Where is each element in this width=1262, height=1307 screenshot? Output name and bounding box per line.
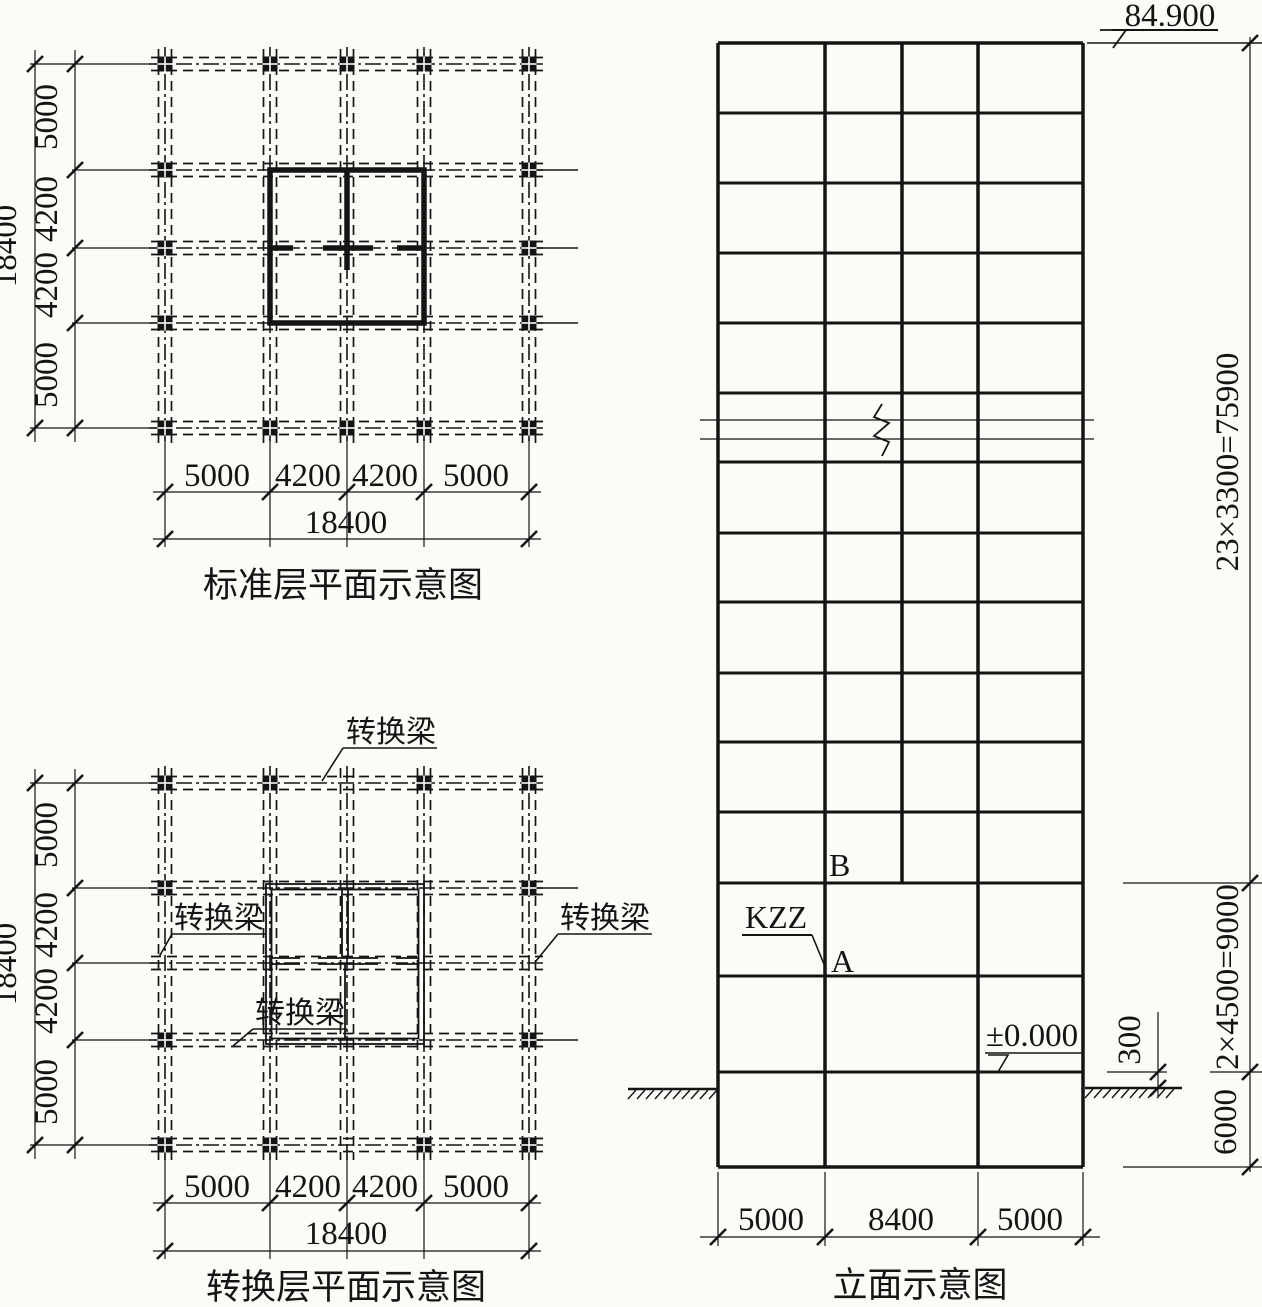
level-triangle-icon bbox=[1100, 30, 1126, 48]
point-a-label: A bbox=[831, 943, 854, 979]
dim-left: 4200 bbox=[29, 176, 65, 242]
leader-line bbox=[536, 934, 558, 961]
dim-basement: 6000 bbox=[1208, 1089, 1244, 1155]
plan-title: 转换层平面示意图 bbox=[206, 1268, 486, 1307]
text-layer: 18400 5000 4200 4200 5000 5000 4200 4200… bbox=[0, 0, 1246, 1307]
dim-left: 5000 bbox=[29, 84, 65, 150]
dim-total-left: 18400 bbox=[0, 923, 24, 1006]
ground-hatch bbox=[637, 1090, 645, 1099]
ground-hatch bbox=[646, 1090, 654, 1099]
elevation-view bbox=[628, 35, 1262, 1246]
roof-level-value: 84.900 bbox=[1125, 0, 1216, 34]
dim-tower-height: 23×3300=75900 bbox=[1210, 353, 1246, 572]
structural-drawing-sheet: 18400 5000 4200 4200 5000 5000 4200 4200… bbox=[0, 0, 1262, 1307]
ground-hatch bbox=[1166, 1089, 1174, 1098]
dim-total-bottom: 18400 bbox=[305, 1216, 388, 1252]
ground-hatch bbox=[1139, 1089, 1147, 1098]
break-zigzag-icon bbox=[874, 404, 889, 456]
dim-bottom: 4200 bbox=[352, 1169, 418, 1205]
dim-total-bottom: 18400 bbox=[305, 505, 388, 541]
dim-total-left: 18400 bbox=[0, 205, 24, 288]
ground-hatch bbox=[709, 1090, 717, 1099]
dim-left: 4200 bbox=[29, 892, 65, 958]
annotation-lines bbox=[159, 30, 1218, 1072]
dim-bottom: 4200 bbox=[352, 458, 418, 494]
dim-bottom: 5000 bbox=[443, 458, 509, 494]
ground-hatch bbox=[700, 1090, 708, 1099]
dim-bottom: 4200 bbox=[275, 458, 341, 494]
dim-bottom: 5000 bbox=[443, 1169, 509, 1205]
dim-bottom: 5000 bbox=[738, 1202, 804, 1238]
dim-left: 4200 bbox=[29, 968, 65, 1034]
dim-ground-offset: 300 bbox=[1112, 1015, 1148, 1065]
dim-bottom: 5000 bbox=[997, 1202, 1063, 1238]
ground-hatch bbox=[1094, 1089, 1102, 1098]
dim-left: 5000 bbox=[29, 802, 65, 868]
dim-bottom: 5000 bbox=[184, 1169, 250, 1205]
ground-hatch bbox=[1103, 1089, 1111, 1098]
kzz-label: KZZ bbox=[745, 899, 807, 935]
ground-level-value: ±0.000 bbox=[986, 1018, 1078, 1054]
level-triangle-icon bbox=[988, 1055, 1008, 1072]
ground-hatch bbox=[682, 1090, 690, 1099]
plan-title: 标准层平面示意图 bbox=[203, 566, 483, 605]
dim-left: 5000 bbox=[29, 1059, 65, 1125]
ground-hatch bbox=[1121, 1089, 1129, 1098]
ground-hatch bbox=[1085, 1089, 1093, 1098]
ground-hatch bbox=[673, 1090, 681, 1099]
ground-hatch bbox=[664, 1090, 672, 1099]
ground-hatch bbox=[691, 1090, 699, 1099]
ground-hatch bbox=[628, 1090, 636, 1099]
dim-bottom: 4200 bbox=[275, 1169, 341, 1205]
dim-left: 5000 bbox=[29, 342, 65, 408]
dim-bottom: 8400 bbox=[868, 1202, 934, 1238]
drawing-canvas: 18400 5000 4200 4200 5000 5000 4200 4200… bbox=[0, 0, 1262, 1307]
ground-hatch bbox=[1148, 1089, 1156, 1098]
transfer-beam-label: 转换梁 bbox=[346, 716, 436, 749]
dim-left: 4200 bbox=[29, 252, 65, 318]
leader-line bbox=[233, 1029, 253, 1046]
elevation-title: 立面示意图 bbox=[832, 1266, 1007, 1305]
transfer-beam-label: 转换梁 bbox=[174, 902, 264, 935]
transfer-beam-label: 转换梁 bbox=[560, 902, 650, 935]
dim-bottom: 5000 bbox=[184, 458, 250, 494]
dim-transfer-storeys: 2×4500=9000 bbox=[1210, 884, 1246, 1070]
ground-hatch bbox=[655, 1090, 663, 1099]
point-b-label: B bbox=[829, 847, 850, 883]
transfer-beam-label: 转换梁 bbox=[255, 997, 345, 1030]
ground-hatch bbox=[1112, 1089, 1120, 1098]
ground-hatch bbox=[1130, 1089, 1138, 1098]
